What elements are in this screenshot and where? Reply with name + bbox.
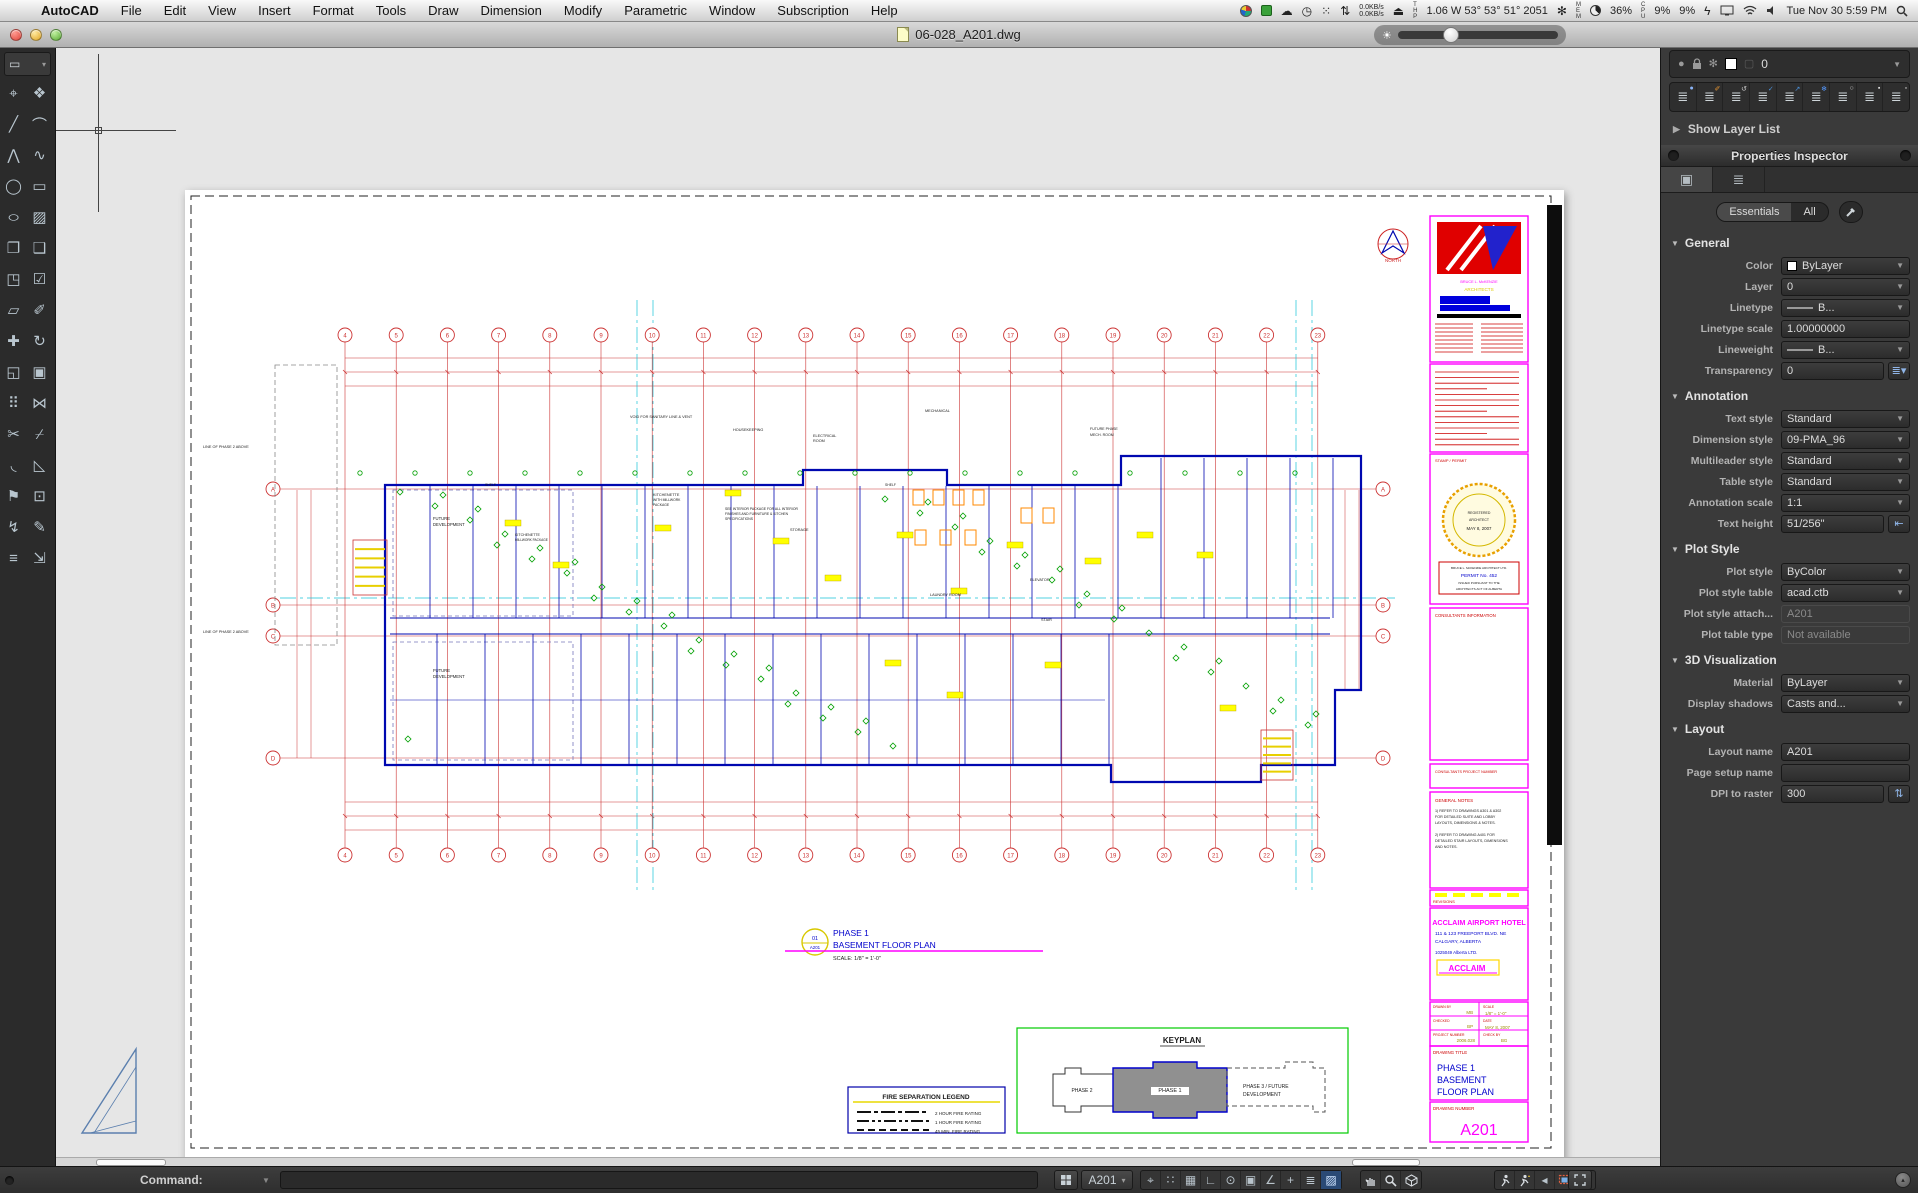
layer-previous-button[interactable]: ≣↺ — [1723, 83, 1750, 111]
prop-row-color: ColorByLayer▼ — [1669, 256, 1910, 275]
menu-autocad[interactable]: AutoCAD — [30, 3, 110, 18]
menu-dimension[interactable]: Dimension — [469, 3, 552, 18]
dropdown-caret-icon: ▼ — [1896, 261, 1904, 270]
sheet-text: ACCLAIM AIRPORT HOTEL — [1432, 918, 1526, 927]
sheet-text: PHASE 2 — [1071, 1088, 1092, 1094]
freeze-icon[interactable]: ✻ — [1709, 59, 1718, 70]
show-layer-list-toggle[interactable]: ▶ Show Layer List — [1661, 114, 1918, 145]
fillet-tool-icon[interactable]: ◟ — [2, 454, 26, 476]
sheet-text: BG — [1501, 1038, 1508, 1043]
prop-label-plot-style-table: Plot style table — [1669, 587, 1781, 599]
power-bolt-icon[interactable]: ϟ — [1704, 5, 1710, 17]
floor-plan-drawing: 4455667788991010111112121313141415151616… — [185, 190, 1564, 1164]
pickbox-tool-icon[interactable]: ⊡ — [28, 485, 52, 507]
sheet-text: REVISIONS — [1433, 899, 1455, 904]
prop-label-display-shadows: Display shadows — [1669, 698, 1781, 710]
transparency-aux-button[interactable]: ≣▾ — [1888, 362, 1910, 380]
dropdown-caret-icon: ▼ — [1896, 282, 1904, 291]
measure-tool-icon[interactable]: ≡ — [2, 547, 26, 569]
sheet-text: PROJECT NUMBER — [1433, 1033, 1465, 1037]
volume-icon[interactable] — [1766, 5, 1778, 16]
svg-text:20: 20 — [1161, 853, 1168, 859]
dropdown-caret-icon: ▼ — [1896, 477, 1904, 486]
ucs-paper-icon — [74, 1043, 144, 1138]
block-tool-icon[interactable]: ❖ — [28, 82, 52, 104]
window-title: 06-028_A201.dwg — [915, 27, 1021, 42]
layer-unlock-button[interactable]: ≣▫ — [1883, 83, 1909, 111]
array-tool-icon[interactable]: ⠿ — [2, 392, 26, 414]
linetype-scale-field[interactable]: 1.00000000 — [1781, 320, 1910, 338]
linetype-sample-icon — [1787, 349, 1813, 351]
color-swatch-icon — [1787, 261, 1797, 271]
sheet-text: KITCHENETTE — [653, 493, 680, 497]
sheet-text: REGISTERED — [1468, 511, 1491, 515]
prop-label-annotation-scale: Annotation scale — [1669, 497, 1781, 509]
prop-row-layer: Layer0▼ — [1669, 277, 1910, 296]
selection-tool-button[interactable]: ▭ ▾ — [4, 52, 51, 76]
magnifier-icon — [1384, 1174, 1397, 1187]
clock-icon[interactable]: ◷ — [1302, 5, 1312, 17]
flag-tool-icon[interactable]: ⚑ — [2, 485, 26, 507]
sheet-text: KITCHENETTE — [515, 533, 541, 537]
plot-table-type-field: Not available — [1781, 626, 1910, 644]
layer-color-swatch[interactable] — [1725, 58, 1737, 70]
text-style-value: Standard — [1787, 413, 1891, 425]
svg-text:A: A — [271, 487, 275, 493]
menu-edit[interactable]: Edit — [153, 3, 197, 18]
polar-toggle-icon[interactable]: ⊙ — [1221, 1171, 1241, 1189]
menu-window[interactable]: Window — [698, 3, 766, 18]
prop-label-plot-table-type: Plot table type — [1669, 629, 1781, 641]
activity-pie-icon[interactable] — [1240, 5, 1252, 17]
annotation-scale-value: 1:1 — [1787, 497, 1891, 509]
properties-panel-header[interactable]: Properties Inspector — [1661, 145, 1918, 167]
sheet-text: BRUCE L. McKENZIE — [1460, 280, 1498, 284]
cpu-prefix: CPU — [1641, 2, 1645, 20]
panel-dot-icon-4[interactable] — [1900, 150, 1911, 161]
linetype-field[interactable]: B...▼ — [1781, 299, 1910, 317]
transparency-value: 0 — [1787, 365, 1878, 377]
prop-row-table-style: Table styleStandard▼ — [1669, 472, 1910, 491]
svg-text:18: 18 — [1058, 333, 1065, 339]
svg-text:13: 13 — [802, 333, 809, 339]
brightness-slider[interactable]: ☀ — [1374, 25, 1566, 45]
layer-lock-button[interactable]: ≣▪ — [1857, 83, 1884, 111]
dropdown-caret-icon: ▼ — [1896, 345, 1904, 354]
display-shadows-field[interactable]: Casts and...▼ — [1781, 695, 1910, 713]
pencil-tool-icon[interactable]: ✎ — [28, 516, 52, 538]
sheet-text: 2006.028 — [1457, 1038, 1476, 1043]
menu-view[interactable]: View — [197, 3, 247, 18]
prop-label-lineweight: Lineweight — [1669, 344, 1781, 356]
display-shadows-value: Casts and... — [1787, 698, 1891, 710]
osnap-toggle-icon[interactable]: ▣ — [1241, 1171, 1261, 1189]
svg-text:15: 15 — [905, 333, 912, 339]
svg-text:14: 14 — [854, 333, 861, 339]
prop-label-text-style: Text style — [1669, 413, 1781, 425]
table-style-field[interactable]: Standard▼ — [1781, 473, 1910, 491]
annotation-visibility-button[interactable] — [1495, 1171, 1515, 1189]
sheet-text: PHASE 1 — [833, 928, 869, 938]
sheet-text: SCALE — [1483, 1005, 1495, 1009]
menu-parametric[interactable]: Parametric — [613, 3, 698, 18]
sheet-text: ELECTRICAL — [813, 434, 836, 438]
section-layout[interactable]: ▼Layout — [1669, 715, 1910, 740]
plot-style-table-field[interactable]: acad.ctb▼ — [1781, 584, 1910, 602]
prop-row-lineweight: LineweightB...▼ — [1669, 340, 1910, 359]
offset-tool-icon[interactable]: ▣ — [28, 361, 52, 383]
disclosure-triangle-icon: ▼ — [1671, 392, 1679, 401]
svg-text:17: 17 — [1007, 333, 1014, 339]
linetype-value: B... — [1818, 302, 1891, 314]
spline-tool-icon[interactable]: ∿ — [28, 144, 52, 166]
eyedropper-icon — [1845, 206, 1857, 218]
section-general[interactable]: ▼General — [1669, 229, 1910, 254]
svg-text:15: 15 — [905, 853, 912, 859]
sheet-text: 45 MIN. FIRE RATING — [935, 1129, 981, 1134]
wifi-icon[interactable] — [1743, 5, 1757, 16]
sheet-text: FINISHES AND FURNITURE & KITCHEN — [725, 512, 789, 516]
line-tool-icon[interactable]: ╱ — [2, 113, 26, 135]
layout-grid-button[interactable] — [1054, 1170, 1078, 1190]
properties-panel-title: Properties Inspector — [1731, 149, 1848, 163]
sheet-text: LINE OF PHASE 2 ABOVE — [203, 630, 249, 634]
eyedropper-button[interactable] — [1839, 201, 1863, 223]
prop-row-text-style: Text styleStandard▼ — [1669, 409, 1910, 428]
mem-percent[interactable]: 36% — [1610, 5, 1632, 17]
explode-tool-icon[interactable]: ↯ — [2, 516, 26, 538]
lineweight-toggle-icon[interactable]: ≣ — [1301, 1171, 1321, 1189]
box-3d-tool-icon[interactable]: ▱ — [2, 299, 26, 321]
svg-text:17: 17 — [1007, 853, 1014, 859]
menu-tools[interactable]: Tools — [365, 3, 417, 18]
paintbrush-tool-icon[interactable]: ✐ — [28, 299, 52, 321]
grid-toggle-icon[interactable]: ▦ — [1181, 1171, 1201, 1189]
filter-segmented-control: Essentials All — [1716, 202, 1828, 222]
duplicate-tool-icon[interactable]: ❑ — [28, 237, 52, 259]
filter-all[interactable]: All — [1791, 203, 1827, 221]
menu-file[interactable]: File — [110, 3, 153, 18]
stamp-tool-icon[interactable]: ◳ — [2, 268, 26, 290]
fan-icon[interactable]: ✻ — [1557, 5, 1567, 17]
layer-make-current-button[interactable]: ≣✓ — [1750, 83, 1777, 111]
menu-insert[interactable]: Insert — [247, 3, 302, 18]
pan-hand-icon — [1364, 1174, 1377, 1187]
sheet-text: DRAWN BY — [1433, 1005, 1452, 1009]
plot-style-value: ByColor — [1787, 566, 1891, 578]
svg-text:14: 14 — [854, 853, 861, 859]
sheet-text: DATE — [1483, 1019, 1493, 1023]
palette-dot-icon[interactable] — [5, 1176, 14, 1185]
text-height-aux-button[interactable]: ⇤ — [1888, 515, 1910, 533]
menu-draw[interactable]: Draw — [417, 3, 469, 18]
material-value: ByLayer — [1787, 677, 1891, 689]
layer-walk-button[interactable]: ≣✐ — [1697, 83, 1724, 111]
lineweight-value: B... — [1818, 344, 1891, 356]
sheet-text: MB — [1466, 1010, 1473, 1015]
otrack-toggle-icon[interactable]: ∠ — [1261, 1171, 1281, 1189]
right-dock: Layers ● ✻ ▢ 0 ▼ ≣●≣✐≣↺≣✓≣↗≣❄≣○≣▪≣▫ ▶ Sh… — [1660, 22, 1918, 1166]
section-plot-style[interactable]: ▼Plot Style — [1669, 535, 1910, 560]
layer-freeze-button[interactable]: ≣❄ — [1803, 83, 1830, 111]
updown-arrows-icon[interactable]: ⇅ — [1340, 5, 1350, 17]
prop-label-table-style: Table style — [1669, 476, 1781, 488]
annotation-scale-field[interactable]: 1:1▼ — [1781, 494, 1910, 512]
sheet-text: MECHANICAL — [925, 409, 950, 413]
window-title-bar[interactable]: 06-028_A201.dwg ☀ — [0, 22, 1918, 48]
prop-row-material: MaterialByLayer▼ — [1669, 673, 1910, 692]
rotate-tool-icon[interactable]: ↻ — [28, 330, 52, 352]
sheet-text: DETAILED STAIR LAYOUTS, DIMENSIONS — [1435, 839, 1508, 843]
arc-tool-icon[interactable]: ⌒ — [28, 113, 52, 135]
close-button[interactable] — [10, 29, 22, 41]
annotation-autoscale-button[interactable] — [1515, 1171, 1535, 1189]
dropdown-caret-icon: ▼ — [1896, 699, 1904, 708]
runner-star-icon — [1519, 1174, 1531, 1187]
command-history-caret[interactable]: ▼ — [262, 1176, 270, 1185]
color-field[interactable]: ByLayer▼ — [1781, 257, 1910, 275]
sheet-text: 1 HOUR FIRE RATING — [935, 1120, 982, 1125]
current-layer-row[interactable]: ● ✻ ▢ 0 ▼ — [1669, 50, 1910, 78]
sheet-text: CHECKED — [1433, 1019, 1450, 1023]
cloud-icon[interactable]: ☁ — [1281, 5, 1293, 17]
pan-button[interactable] — [1361, 1171, 1381, 1189]
active-layout-name: A201 — [1088, 1173, 1116, 1187]
plot-table-type-value: Not available — [1787, 629, 1904, 641]
menu-modify[interactable]: Modify — [553, 3, 613, 18]
multileader-style-value: Standard — [1787, 455, 1891, 467]
minimize-button[interactable] — [30, 29, 42, 41]
multileader-style-field[interactable]: Standard▼ — [1781, 452, 1910, 470]
display-icon[interactable] — [1720, 5, 1734, 16]
orbit-button[interactable] — [1401, 1171, 1421, 1189]
prop-row-transparency: Transparency0≣▾ — [1669, 361, 1910, 380]
filter-essentials[interactable]: Essentials — [1717, 203, 1791, 221]
ortho-toggle-icon[interactable]: ∟ — [1201, 1171, 1221, 1189]
disclosure-triangle-icon: ▼ — [1671, 656, 1679, 665]
trim-tool-icon[interactable]: ✂ — [2, 423, 26, 445]
snap-toggle-icon[interactable]: ⌖ — [1141, 1171, 1161, 1189]
svg-text:21: 21 — [1212, 853, 1219, 859]
sheet-text: SHELF — [885, 483, 896, 487]
prop-label-plot-style-attach: Plot style attach... — [1669, 608, 1781, 620]
sheet-text: STAMP / PERMIT — [1435, 458, 1467, 463]
cpu-percent[interactable]: 9% — [1654, 5, 1670, 17]
sheet-text: 1025049 Alberta LTD. — [1435, 950, 1477, 955]
sheet-text: DEVELOPMENT — [433, 522, 465, 527]
sheet-text: PACKAGE — [653, 503, 670, 507]
sheet-text: MAY 8, 2007 — [1485, 1025, 1511, 1030]
text-height-field[interactable]: 51/256" — [1781, 515, 1884, 533]
dpi-to-raster-aux-button[interactable]: ⇅ — [1888, 785, 1910, 803]
macos-menu-bar: AutoCADFileEditViewInsertFormatToolsDraw… — [0, 0, 1918, 22]
grid-dots-toggle-icon[interactable]: ∷ — [1161, 1171, 1181, 1189]
chevron-down-icon: ▾ — [42, 60, 46, 69]
status-green-icon[interactable] — [1261, 5, 1272, 16]
material-field[interactable]: ByLayer▼ — [1781, 674, 1910, 692]
rectangle-tool-icon[interactable]: ▭ — [28, 175, 52, 197]
svg-text:10: 10 — [649, 853, 656, 859]
sheet-text: ROOM — [813, 439, 825, 443]
ellipse-tool-icon[interactable]: ○ — [2, 206, 26, 228]
bluetooth-icon[interactable]: ⁙ — [1321, 5, 1331, 17]
sheet-text: AND NOTES. — [1435, 845, 1458, 849]
zoom-button[interactable] — [50, 29, 62, 41]
sheet-text: DRAWING TITLE — [1433, 1050, 1467, 1055]
scale-tool-icon[interactable]: ◱ — [2, 361, 26, 383]
layout-paper[interactable]: 4455667788991010111112121313141415151616… — [185, 190, 1564, 1164]
sheet-text: NORTH — [1385, 258, 1401, 263]
text-style-field[interactable]: Standard▼ — [1781, 410, 1910, 428]
sheet-text: STAIR — [1041, 618, 1052, 622]
plot-style-table-value: acad.ctb — [1787, 587, 1891, 599]
svg-text:D: D — [1381, 756, 1386, 762]
sheet-text: 01 — [812, 936, 818, 942]
sheet-text: 1/8" = 1'-0" — [1485, 1011, 1507, 1016]
horizontal-scrollbar[interactable] — [56, 1157, 1660, 1166]
sheet-text: LAUNDRY ROOM — [930, 593, 961, 597]
dropdown-caret-icon: ▼ — [1896, 588, 1904, 597]
sensor-readout[interactable]: 1.06 W 53° 53° 51° 2051 — [1426, 5, 1547, 17]
command-prompt-label: Command: — [140, 1173, 203, 1187]
scrollbar-thumb[interactable] — [96, 1159, 166, 1166]
layer-off-button[interactable]: ≣○ — [1830, 83, 1857, 111]
zoom-button-status[interactable] — [1381, 1171, 1401, 1189]
prop-row-plot-table-type: Plot table typeNot available — [1669, 625, 1910, 644]
sheet-text: BASEMENT FLOOR PLAN — [833, 940, 936, 950]
viewport-freeze-icon: ▢ — [1744, 59, 1754, 70]
break-tool-icon[interactable]: ⌿ — [28, 423, 52, 445]
chamfer-tool-icon[interactable]: ◺ — [28, 454, 52, 476]
current-layer-name[interactable]: 0 — [1761, 57, 1886, 71]
svg-text:20: 20 — [1161, 333, 1168, 339]
hatch-tool-icon[interactable]: ▨ — [28, 206, 52, 228]
extend-tool-icon[interactable]: ⇲ — [28, 547, 52, 569]
svg-text:11: 11 — [700, 333, 707, 339]
dpi-to-raster-field[interactable]: 300 — [1781, 785, 1884, 803]
menubar-clock[interactable]: Tue Nov 30 5:59 PM — [1787, 5, 1887, 17]
layout-name-value: A201 — [1787, 746, 1904, 758]
plot-style-field[interactable]: ByColor▼ — [1781, 563, 1910, 581]
svg-text:12: 12 — [751, 853, 758, 859]
dimension-style-field[interactable]: 09-PMA_96▼ — [1781, 431, 1910, 449]
prop-row-text-height: Text height51/256"⇤ — [1669, 514, 1910, 533]
sheet-text: CALGARY, ALBERTA — [1435, 939, 1482, 945]
runner-icon — [1499, 1174, 1511, 1187]
rectangle-select-icon: ▭ — [9, 57, 20, 71]
prop-label-transparency: Transparency — [1669, 365, 1781, 377]
scrollbar-thumb-2[interactable] — [1352, 1159, 1420, 1166]
sheet-text: PHASE 1 — [1158, 1088, 1181, 1094]
dropdown-caret-icon: ▼ — [1896, 303, 1904, 312]
sheet-text: DRAWING NUMBER — [1433, 1106, 1474, 1111]
lock-icon[interactable] — [1692, 58, 1702, 70]
transparency-field[interactable]: 0 — [1781, 362, 1884, 380]
sheet-text: LINE OF PHASE 2 ABOVE — [203, 445, 249, 449]
prop-row-annotation-scale: Annotation scale1:1▼ — [1669, 493, 1910, 512]
dropdown-caret-icon: ▼ — [1896, 678, 1904, 687]
fullscreen-button[interactable] — [1568, 1170, 1592, 1190]
tab-layer-properties[interactable]: ≣ — [1713, 167, 1765, 192]
menu-subscription[interactable]: Subscription — [766, 3, 860, 18]
gpu-percent[interactable]: 9% — [1679, 5, 1695, 17]
panel-dot-icon-3[interactable] — [1668, 150, 1679, 161]
color-value: ByLayer — [1802, 260, 1891, 272]
tab-object-properties[interactable]: ▣ — [1661, 167, 1713, 192]
layer-field[interactable]: 0▼ — [1781, 278, 1910, 296]
eject-icon[interactable]: ⏏ — [1393, 5, 1404, 17]
brightness-track[interactable] — [1398, 31, 1558, 39]
brightness-knob[interactable] — [1443, 27, 1459, 43]
copy-tool-icon[interactable]: ❐ — [2, 237, 26, 259]
layer-on-icon[interactable]: ● — [1678, 59, 1685, 70]
dyn-input-toggle-icon[interactable]: + — [1281, 1171, 1301, 1189]
network-speed[interactable]: 0.0KB/s 0.0KB/s — [1359, 4, 1384, 18]
move-tool-icon[interactable]: ✚ — [2, 330, 26, 352]
sheet-text: FUTURE — [433, 668, 450, 673]
prop-label-layer: Layer — [1669, 281, 1781, 293]
transparency-toggle-icon[interactable]: ▨ — [1321, 1171, 1341, 1189]
prop-row-plot-style: Plot styleByColor▼ — [1669, 562, 1910, 581]
tool-palette: ▭ ▾ ⌖❖╱⌒⋀∿◯▭○▨❐❑◳☑▱✐✚↻◱▣⠿⋈✂⌿◟◺⚑⊡↯✎≡⇲ — [0, 48, 56, 1166]
layout-switcher[interactable]: A201 ▾ — [1081, 1170, 1133, 1190]
sheet-text: ARCHITECTS ACT OF ALBERTA — [1456, 587, 1503, 591]
sheet-text: MECH. ROOM — [1090, 433, 1114, 437]
drawing-canvas[interactable]: 4455667788991010111112121313141415151616… — [56, 48, 1660, 1166]
page-setup-name-field[interactable] — [1781, 764, 1910, 782]
mem-prefix: MEM — [1576, 2, 1581, 20]
cube-icon — [1405, 1174, 1418, 1187]
dock-collapse-button[interactable]: ▴ — [1895, 1172, 1911, 1188]
spotlight-icon[interactable] — [1896, 5, 1908, 17]
sheet-text: BRUCE L. McKENZIE ARCHITECT LTD. — [1451, 566, 1507, 570]
layer-dropdown-caret[interactable]: ▼ — [1893, 60, 1901, 69]
sheet-text: SCALE: 1/8" = 1'-0" — [833, 956, 881, 962]
lineweight-field[interactable]: B...▼ — [1781, 341, 1910, 359]
layout-caret-icon: ▾ — [1122, 1176, 1126, 1185]
fullscreen-icon — [1574, 1174, 1586, 1186]
status-command-bar: Command: ▼ A201 ▾ ⌖∷▦∟⊙▣∠+≣▨ ◂ ▸ — [0, 1166, 1918, 1193]
section-annotation[interactable]: ▼Annotation — [1669, 382, 1910, 407]
layer-value: 0 — [1787, 281, 1891, 293]
layer-match-button[interactable]: ≣↗ — [1777, 83, 1804, 111]
dropdown-caret-icon: ▼ — [1896, 498, 1904, 507]
crosshair-cursor-h — [56, 130, 176, 131]
sheet-text: DEVELOPMENT — [1243, 1092, 1281, 1098]
stamp-check-tool-icon[interactable]: ☑ — [28, 268, 52, 290]
sheet-text: ACCLAIM — [1449, 964, 1486, 973]
annotation-scale-prev-button[interactable]: ◂ — [1535, 1171, 1555, 1189]
prop-label-color: Color — [1669, 260, 1781, 272]
menu-help[interactable]: Help — [860, 3, 909, 18]
section-3d-visualization[interactable]: ▼3D Visualization — [1669, 646, 1910, 671]
dimension-style-value: 09-PMA_96 — [1787, 434, 1891, 446]
sheet-text: CHECK BY — [1483, 1033, 1501, 1037]
layout-name-field[interactable]: A201 — [1781, 743, 1910, 761]
circle-tool-icon[interactable]: ◯ — [2, 175, 26, 197]
layer-new-button[interactable]: ≣● — [1670, 83, 1697, 111]
memory-gauge-icon[interactable] — [1590, 5, 1601, 16]
polyline-tool-icon[interactable]: ⋀ — [2, 144, 26, 166]
prop-row-linetype-scale: Linetype scale1.00000000 — [1669, 319, 1910, 338]
mirror-tool-icon[interactable]: ⋈ — [28, 392, 52, 414]
disclosure-triangle-icon: ▼ — [1671, 239, 1679, 248]
sheet-text: STORAGE — [790, 528, 809, 532]
sheet-text: MAY 8, 2007 — [1467, 526, 1493, 531]
point-tool-icon[interactable]: ⌖ — [2, 82, 26, 104]
menu-format[interactable]: Format — [302, 3, 365, 18]
command-input[interactable] — [280, 1171, 1038, 1189]
